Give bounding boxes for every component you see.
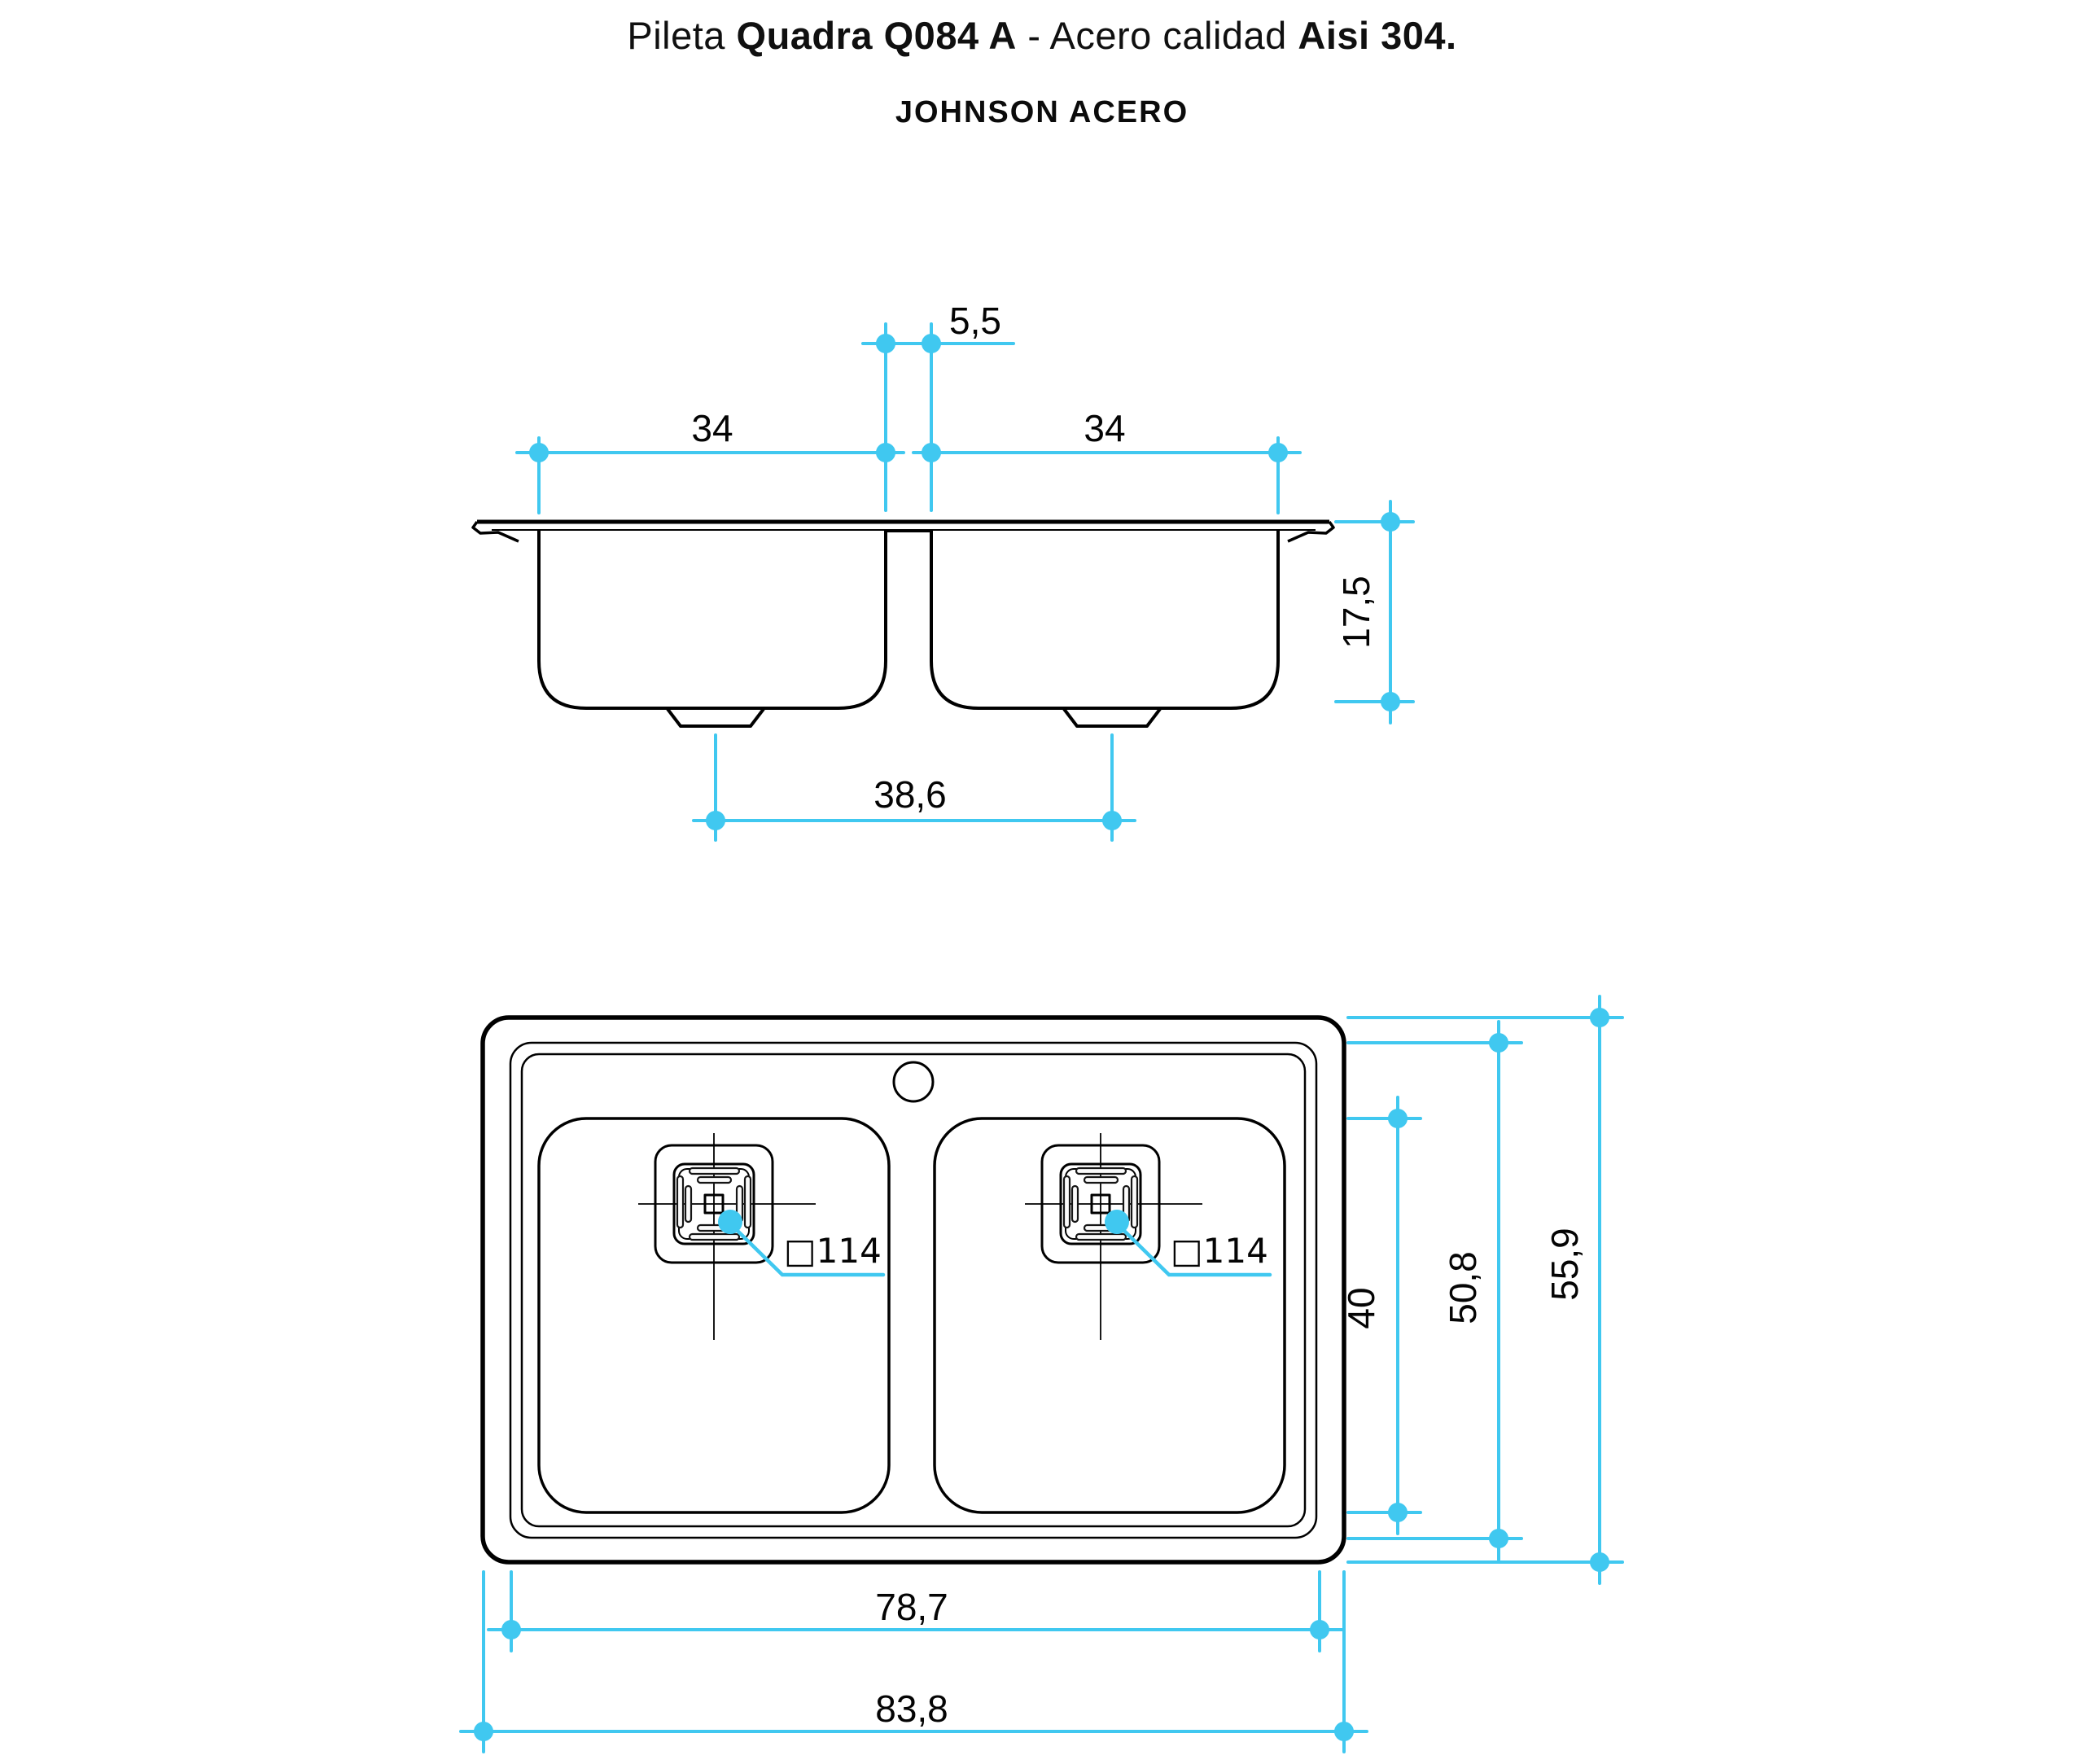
plan-view: □114 □114 40 50,8 [461,996,1622,1752]
left-drain-bump [668,709,764,726]
sink-outer-edge [483,1018,1344,1562]
dim-label-overall-length: 55,9 [1543,1228,1586,1301]
dim-bowl-depth: 17,5 [1335,501,1413,723]
dim-label-inner-width: 78,7 [875,1586,948,1628]
strainer-slot-right-outer [745,1176,751,1228]
dim-label-center-gap: 5,5 [949,300,1001,342]
dim-right-bowl-width: 34 [913,407,1300,513]
dim-label-left-bowl-width: 34 [691,407,733,449]
dim-label-left-drain-size: □114 [784,1231,882,1271]
dim-label-right-drain-size: □114 [1171,1231,1268,1271]
dim-left-bowl-width: 34 [517,407,904,513]
right-bowl-section [931,531,1278,708]
elevation-view: 5,5 34 34 [473,300,1413,840]
dim-inner-width: 78,7 [488,1572,1342,1651]
dim-drain-spacing: 38,6 [694,735,1135,840]
dim-label-right-bowl-width: 34 [1084,407,1125,449]
dim-label-drain-spacing: 38,6 [873,773,947,816]
dim-bowl-length: 40 [1340,1097,1421,1534]
faucet-hole [894,1062,933,1101]
dim-label-bowl-depth: 17,5 [1335,576,1377,649]
dim-center-gap: 5,5 [863,300,1014,510]
technical-drawing: 5,5 34 34 [0,0,2084,1764]
sink-rim-inner-line-1 [510,1043,1316,1538]
rim-right-lip [1288,522,1333,541]
left-bowl-section [539,530,886,708]
strainer-slot-top-outer [690,1168,739,1174]
strainer-slot-left-outer [677,1176,683,1228]
dim-label-inner-length: 50,8 [1442,1251,1484,1324]
strainer-slot-top-inner [698,1177,731,1183]
rim-left-lip [473,522,519,541]
dim-overall-length: 55,9 [1348,996,1622,1583]
strainer-slot-bottom-outer [690,1234,739,1240]
strainer-slot-left-inner [685,1186,691,1222]
sink-rim-inner-line-2 [522,1054,1305,1526]
dim-label-overall-width: 83,8 [875,1687,948,1730]
right-drain-bump [1064,709,1160,726]
dim-label-bowl-length: 40 [1340,1287,1382,1328]
technical-drawing-page: Pileta Quadra Q084 A - Acero calidad Ais… [0,0,2084,1764]
